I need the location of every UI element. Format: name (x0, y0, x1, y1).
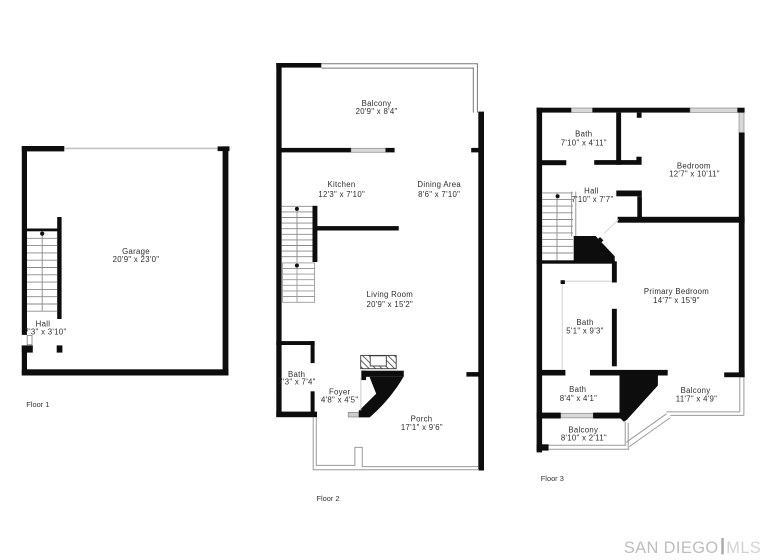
svg-text:Primary Bedroom14'7" x 15'9": Primary Bedroom14'7" x 15'9" (644, 287, 709, 305)
svg-text:Bath8'4" x 4'1": Bath8'4" x 4'1" (560, 385, 597, 403)
svg-text:Hall7'3" x 3'10": Hall7'3" x 3'10" (24, 319, 66, 336)
svg-text:Bedroom12'7" x 10'11": Bedroom12'7" x 10'11" (669, 162, 720, 179)
svg-text:Balcony11'7" x 4'9": Balcony11'7" x 4'9" (676, 386, 717, 403)
svg-text:MLS: MLS (726, 539, 761, 557)
svg-text:Living Room20'9" x 15'2": Living Room20'9" x 15'2" (366, 290, 413, 309)
svg-text:Garage20'9" x 23'0": Garage20'9" x 23'0" (113, 247, 160, 264)
svg-text:Foyer4'8" x 4'5": Foyer4'8" x 4'5" (321, 388, 358, 405)
svg-text:Balcony8'10" x 2'11": Balcony8'10" x 2'11" (561, 425, 607, 442)
svg-text:Kitchen12'3" x 7'10": Kitchen12'3" x 7'10" (318, 180, 365, 199)
svg-text:Bath5'1" x 9'3": Bath5'1" x 9'3" (566, 318, 603, 336)
svg-text:Bath7'3" x 7'4": Bath7'3" x 7'4" (278, 370, 315, 387)
svg-text:Floor 3: Floor 3 (541, 474, 564, 483)
svg-text:Hall7'10" x 7'7": Hall7'10" x 7'7" (571, 187, 613, 204)
svg-text:Floor 1: Floor 1 (26, 400, 49, 409)
svg-text:Floor 2: Floor 2 (317, 494, 340, 503)
svg-text:SAN DIEGO: SAN DIEGO (624, 539, 719, 557)
svg-text:Bath7'10" x 4'11": Bath7'10" x 4'11" (561, 129, 607, 147)
svg-text:Balcony20'9" x 8'4": Balcony20'9" x 8'4" (356, 99, 398, 116)
svg-text:Porch17'1" x 9'6": Porch17'1" x 9'6" (401, 414, 443, 432)
svg-text:Dining Area8'6" x 7'10": Dining Area8'6" x 7'10" (417, 180, 461, 199)
